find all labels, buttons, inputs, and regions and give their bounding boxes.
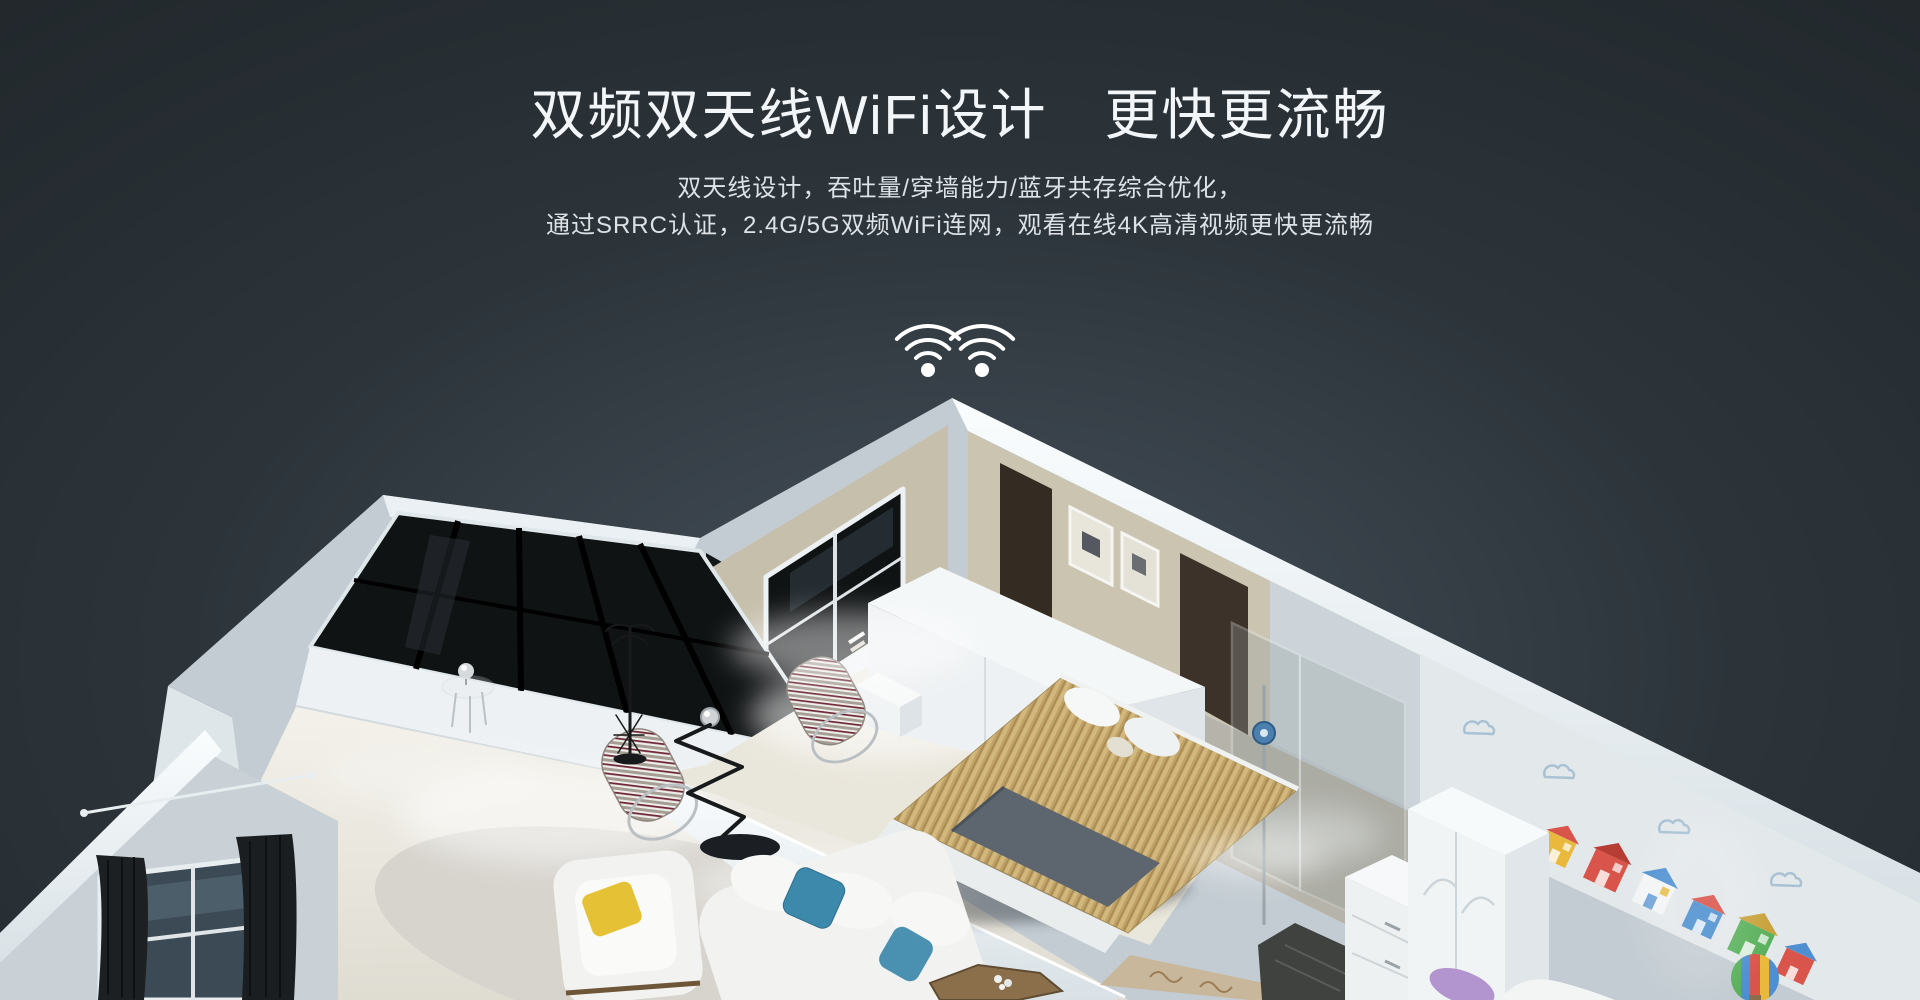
hero-section: 双频双天线WiFi设计 更快更流畅 双天线设计，吞吐量/穿墙能力/蓝牙共存综合优… [0,0,1920,244]
dual-wifi-icons [852,306,1058,386]
wifi-signal-icon [951,326,1013,377]
wifi-signal-icon [897,326,959,377]
page-title: 双频双天线WiFi设计 更快更流畅 [0,70,1920,150]
apartment-isometric-render [0,385,1920,1000]
hero-subtitle: 双天线设计，吞吐量/穿墙能力/蓝牙共存综合优化， 通过SRRC认证，2.4G/5… [0,170,1920,244]
subtitle-line-2: 通过SRRC认证，2.4G/5G双频WiFi连网，观看在线4K高清视频更快更流畅 [0,207,1920,244]
armchair [551,848,705,1000]
page-root: { "hero": { "title": "双频双天线WiFi设计 更快更流畅"… [0,0,1920,1000]
subtitle-line-1: 双天线设计，吞吐量/穿墙能力/蓝牙共存综合优化， [0,170,1920,207]
